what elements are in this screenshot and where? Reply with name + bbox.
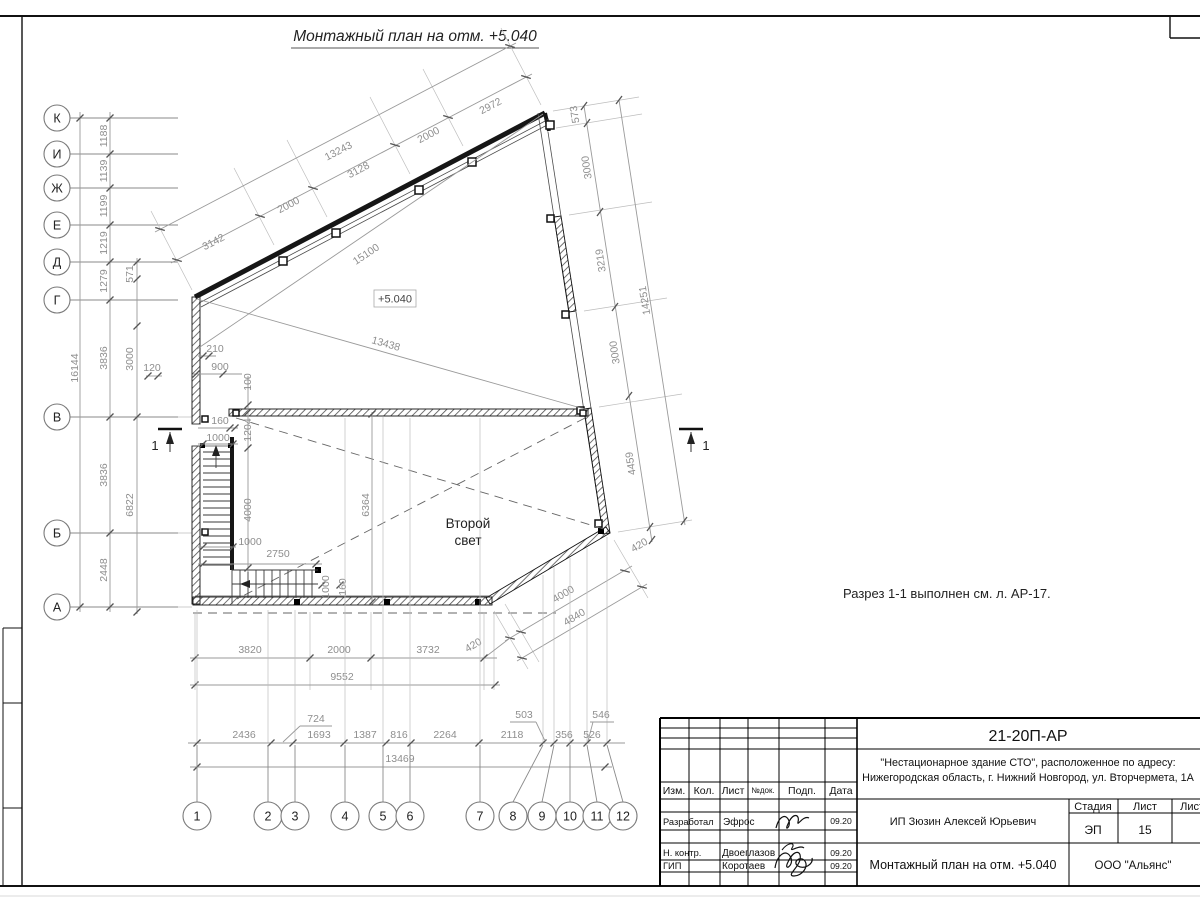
dim-left-5: 3836: [98, 346, 110, 370]
dim-chain-2118: 2118: [501, 729, 524, 741]
dim-right-total: 14251: [637, 285, 653, 316]
dim-1000c: 1000: [320, 575, 332, 599]
interior-dims: 210 900 100 160 1000 1204 4000 1000 2750…: [193, 343, 376, 606]
dim-chain-526: 526: [583, 729, 601, 741]
row1-role: Разработал: [663, 817, 714, 827]
dim-bottom-0: 3820: [238, 644, 262, 656]
title-block: 21-20П-АР "Нестационарное здание СТО", р…: [660, 718, 1200, 886]
axis-label-12: 12: [616, 810, 630, 824]
axis-label-E: Е: [53, 219, 61, 233]
dim-left-1: 1139: [98, 160, 110, 183]
left-dim-chains: 1188 1139 1199 1219 1279 3836 3836 2448 …: [69, 112, 162, 616]
dim-left-6822: 6822: [124, 493, 136, 517]
dim-left-7: 2448: [98, 558, 110, 582]
col-kol: Кол.: [694, 785, 715, 797]
page-title: Монтажный план на отм. +5.040: [293, 28, 537, 45]
drawing-sheet: Монтажный план на отм. +5.040 К И Ж Е Д …: [0, 0, 1200, 900]
interior-wall: [229, 409, 588, 416]
elevation-mark: +5.040: [378, 294, 412, 306]
dim-right-0: 573: [568, 105, 583, 124]
dim-bottom-total: 9552: [330, 671, 354, 683]
dim-diag-15100: 15100: [351, 241, 382, 267]
axis-label-K: К: [53, 112, 61, 126]
left-grid-axes: К И Ж Е Д Г В Б А: [44, 105, 192, 620]
dim-top-total: 13243: [323, 139, 355, 163]
axis-label-V: В: [53, 411, 61, 425]
right-wall-upper: [554, 216, 576, 312]
dim-chain-816: 816: [390, 729, 408, 741]
axis-label-9: 9: [539, 810, 546, 824]
angled-wall: [486, 527, 610, 604]
dim-left-571: 571: [124, 265, 136, 283]
client-name: ИП Зюзин Алексей Юрьевич: [890, 816, 1037, 828]
dim-top-1: 2000: [275, 195, 301, 217]
col-izm: Изм.: [663, 785, 686, 797]
left-wall-lower: [192, 446, 200, 604]
axis-label-3: 3: [292, 810, 299, 824]
axis-label-8: 8: [510, 810, 517, 824]
stair-left-arrow: [240, 580, 250, 588]
project-line2: Нижегородская область, г. Нижний Новгоро…: [862, 772, 1194, 784]
dim-right-4: 4459: [623, 451, 638, 476]
dim-chain-1387: 1387: [353, 729, 377, 741]
axis-label-7: 7: [477, 810, 484, 824]
axis-label-D: Д: [53, 256, 62, 270]
row2-date: 09.20: [830, 848, 852, 858]
section-note: Разрез 1-1 выполнен см. л. АР-17.: [843, 586, 1051, 601]
row3-role: ГИП: [663, 861, 681, 871]
left-wall-upper: [192, 297, 200, 424]
dim-160b: 160: [337, 578, 349, 596]
dim-top-4: 2972: [477, 96, 503, 118]
row1-name: Эфрос: [723, 816, 755, 828]
sheet-number: 15: [1138, 823, 1152, 837]
col-ndok: №док.: [751, 786, 774, 795]
dim-chain-724: 724: [307, 713, 325, 725]
dim-900: 900: [211, 361, 229, 373]
top-dim-chains: 3142 2000 3128 2000 2972 13243 15100 134…: [151, 28, 541, 354]
section-mark-right: 1: [679, 429, 710, 453]
dim-right-3: 3000: [607, 340, 622, 365]
project-line1: "Нестационарное здание СТО", расположенн…: [880, 757, 1175, 769]
dim-bottom-2: 3732: [416, 644, 440, 656]
doc-number: 21-20П-АР: [988, 728, 1067, 745]
dim-1000b: 1000: [238, 536, 262, 548]
row3-date: 09.20: [830, 861, 852, 871]
dim-bottom-420: 420: [463, 636, 484, 655]
dim-left-2: 1199: [98, 195, 110, 218]
dim-left-0: 1188: [98, 125, 110, 148]
stage-value: ЭП: [1084, 823, 1101, 837]
dim-160a: 160: [211, 415, 229, 427]
stair-up-arrow: [212, 445, 220, 456]
dim-chain-2436: 2436: [232, 729, 256, 741]
row1-date: 09.20: [830, 816, 852, 826]
col-list: Лист: [722, 785, 745, 797]
section-mark-left: 1: [151, 429, 182, 453]
dim-1000a: 1000: [206, 432, 230, 444]
dim-chain-1693: 1693: [307, 729, 331, 741]
dim-210: 210: [206, 343, 224, 355]
axis-label-A: А: [53, 601, 62, 615]
dim-chain-503: 503: [515, 709, 533, 721]
plan-canvas: Монтажный план на отм. +5.040 К И Ж Е Д …: [0, 0, 1200, 900]
bottom-dim-chains: 3820 2000 3732 420 9552: [190, 612, 510, 690]
axis-label-B: Б: [53, 527, 61, 541]
corner-doc-box: [1170, 16, 1200, 38]
section-label-right: 1: [702, 438, 709, 453]
axis-label-4: 4: [342, 810, 349, 824]
row3-name: Коротаев: [722, 861, 765, 872]
dim-left-6: 3836: [98, 463, 110, 487]
drawing-name: Монтажный план на отм. +5.040: [870, 858, 1057, 872]
dim-chain-546: 546: [592, 709, 610, 721]
signature-3: [782, 844, 804, 850]
top-wall: [195, 113, 545, 297]
dim-left-120: 120: [143, 362, 161, 374]
dim-left-total: 16144: [69, 353, 81, 382]
void-label-line1: Второй: [446, 516, 491, 531]
signature-1: [776, 816, 809, 829]
dim-2750: 2750: [266, 548, 290, 560]
dim-left-3000: 3000: [124, 347, 136, 371]
dim-left-3: 1219: [98, 231, 110, 255]
dim-right-420: 420: [629, 536, 650, 555]
axis-label-I: И: [53, 148, 62, 162]
stage-label: Стадия: [1074, 801, 1112, 813]
right-dim-chains: 573 3000 3219 3000 4459 14251 420: [553, 96, 692, 555]
dim-left-4: 1279: [98, 269, 110, 293]
row2-role: Н. контр.: [663, 848, 701, 858]
dim-angled-total: 4840: [561, 606, 587, 628]
right-wall-lower: [584, 408, 610, 534]
axis-label-1: 1: [194, 810, 201, 824]
dim-top-3: 2000: [415, 125, 441, 147]
dim-top-2: 3128: [345, 160, 371, 182]
company-name: ООО "Альянс": [1095, 860, 1172, 872]
dim-chain-2264: 2264: [433, 729, 457, 741]
angled-dim-chains: 4000 4840: [494, 540, 648, 669]
column-markers: [202, 121, 602, 535]
plan-heading: Монтажный план на отм. +5.040: [291, 28, 539, 48]
dim-chain-356: 356: [555, 729, 573, 741]
col-podp: Подп.: [788, 785, 816, 797]
axis-label-11: 11: [591, 810, 604, 824]
dim-1204: 1204: [242, 418, 254, 442]
list-label: Лист: [1133, 801, 1157, 813]
section-label-left: 1: [151, 438, 158, 453]
axis-label-6: 6: [407, 810, 414, 824]
col-data: Дата: [829, 785, 852, 797]
dim-top-0: 3142: [200, 232, 226, 254]
axis-label-2: 2: [265, 810, 272, 824]
dim-4000: 4000: [242, 498, 254, 522]
row2-name: Двоеглазов: [722, 848, 775, 859]
axis-label-5: 5: [380, 810, 387, 824]
dim-100: 100: [242, 373, 254, 391]
dim-bottom-1: 2000: [327, 644, 351, 656]
listov-label: Листов: [1180, 801, 1200, 813]
dim-6364: 6364: [360, 493, 372, 517]
axis-label-10: 10: [563, 810, 577, 824]
axis-label-Zh: Ж: [51, 182, 63, 196]
void-label-line2: свет: [454, 533, 481, 548]
dim-diag-13438: 13438: [370, 334, 402, 354]
staircase: [200, 437, 318, 604]
void-dashed-bracing: [236, 418, 604, 599]
axis-label-G: Г: [54, 294, 61, 308]
